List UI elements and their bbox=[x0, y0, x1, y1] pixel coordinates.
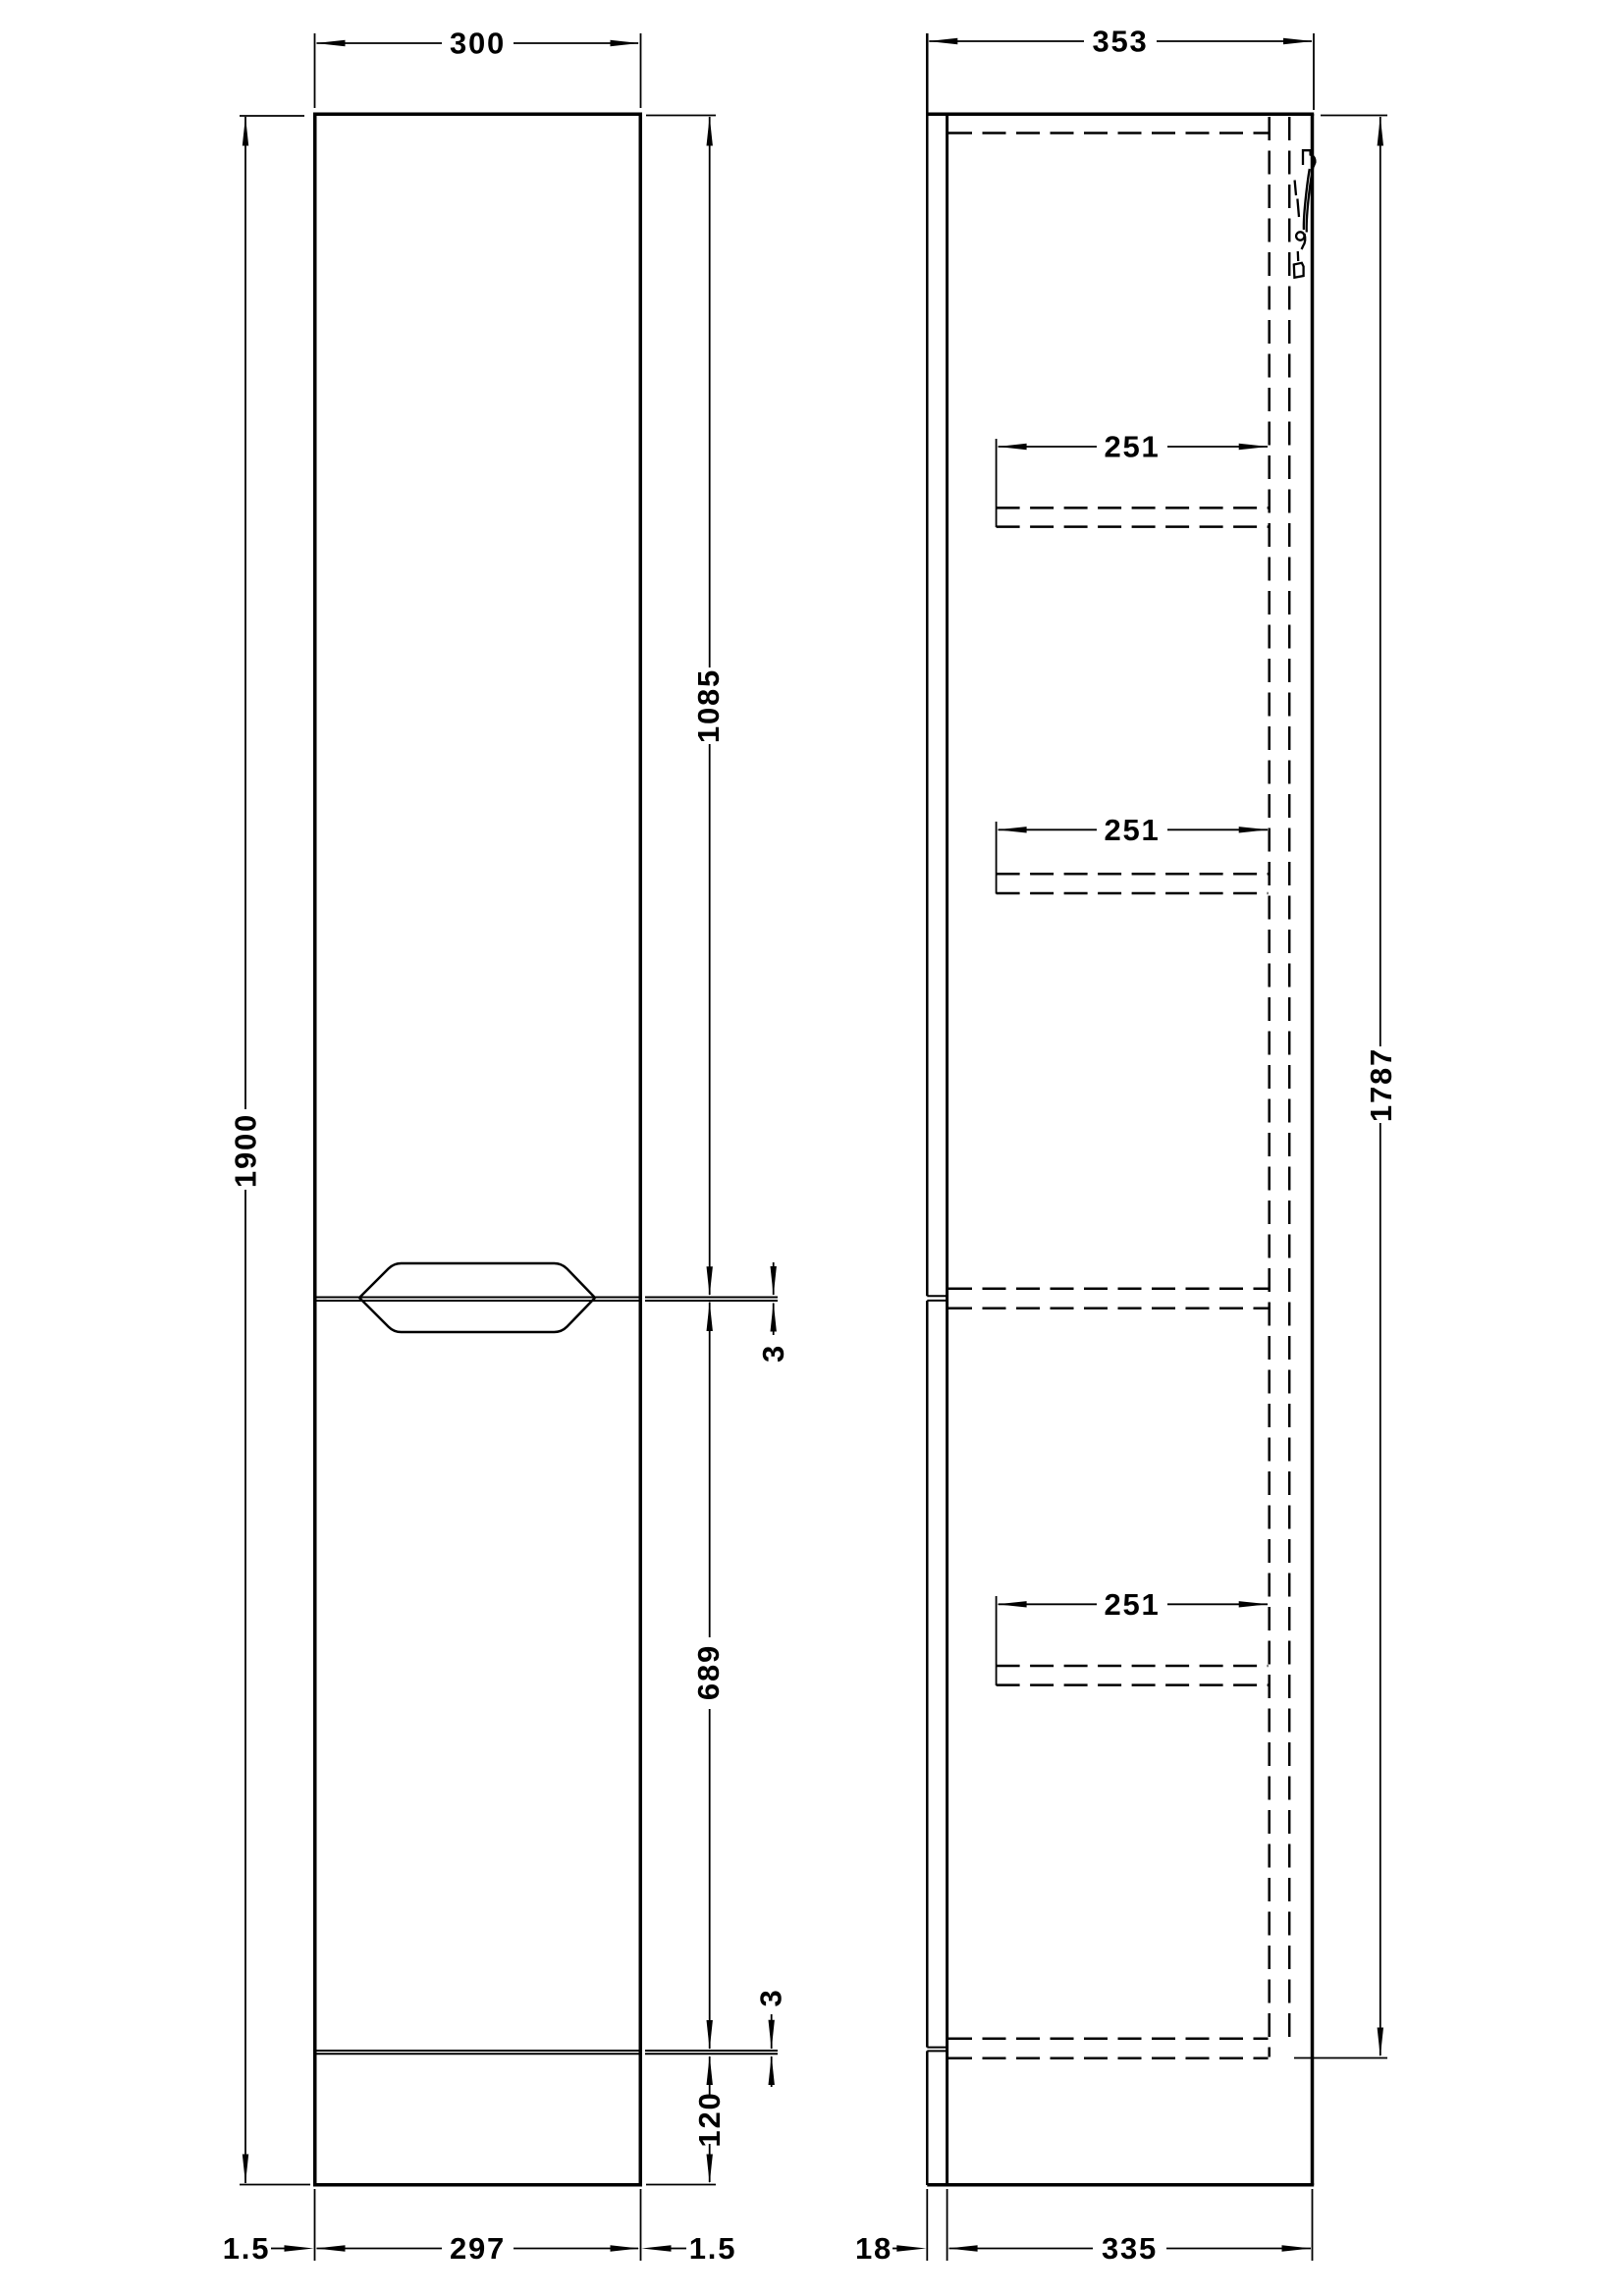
svg-text:689: 689 bbox=[691, 1644, 726, 1700]
svg-text:1.5: 1.5 bbox=[223, 2231, 271, 2266]
svg-text:1085: 1085 bbox=[691, 668, 726, 743]
svg-text:18: 18 bbox=[855, 2231, 893, 2266]
svg-text:251: 251 bbox=[1104, 1587, 1160, 1622]
svg-text:297: 297 bbox=[450, 2231, 506, 2266]
svg-text:335: 335 bbox=[1102, 2231, 1158, 2266]
svg-text:251: 251 bbox=[1104, 813, 1160, 847]
svg-text:1900: 1900 bbox=[229, 1113, 263, 1188]
svg-text:300: 300 bbox=[450, 27, 506, 61]
svg-text:251: 251 bbox=[1104, 430, 1160, 464]
svg-text:1.5: 1.5 bbox=[689, 2231, 737, 2266]
svg-text:3: 3 bbox=[754, 1988, 788, 2006]
svg-text:1787: 1787 bbox=[1364, 1047, 1398, 1122]
svg-text:3: 3 bbox=[756, 1344, 790, 1362]
svg-text:353: 353 bbox=[1092, 25, 1148, 59]
svg-text:120: 120 bbox=[692, 2091, 727, 2147]
